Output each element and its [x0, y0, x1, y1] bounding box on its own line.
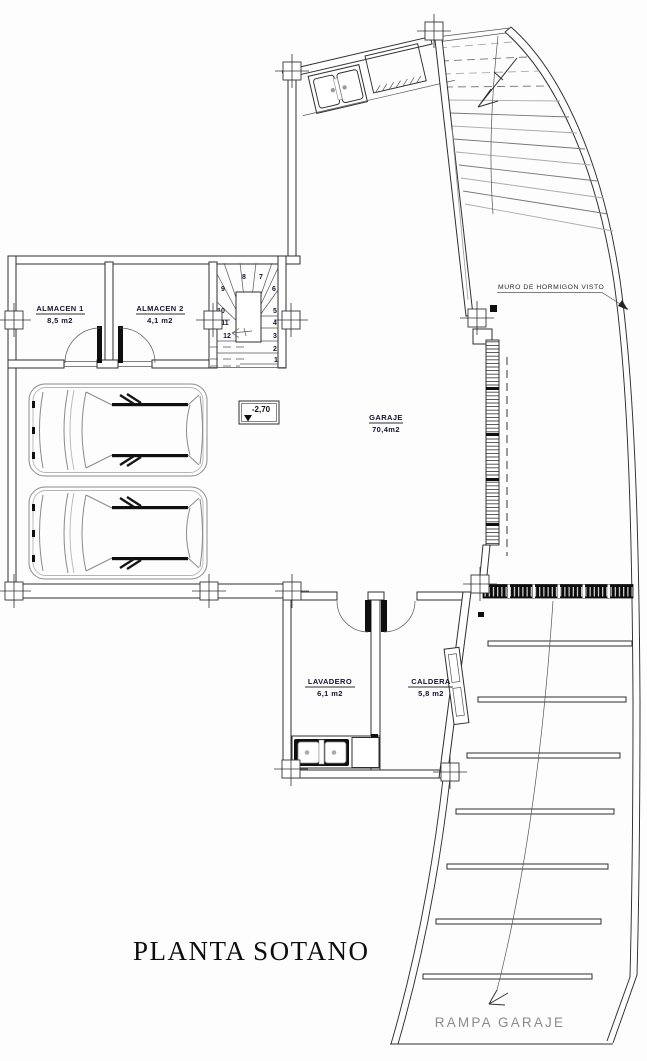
room-name-garaje: GARAJE [369, 413, 403, 422]
room-area-almacen1: 8,5 m2 [47, 316, 73, 325]
stair-step-9: 9 [221, 286, 225, 293]
room-name-lavadero: LAVADERO [308, 677, 352, 686]
level-value: -2,70 [252, 405, 271, 414]
drain-marker [478, 612, 484, 617]
ventilation-grille [486, 340, 499, 545]
room-area-lavadero: 6,1 m2 [317, 689, 343, 698]
wall-note: MURO DE HORMIGON VISTO [497, 284, 628, 310]
upper-utility-area [282, 33, 455, 118]
garage-door-grate [483, 585, 633, 599]
car-1 [29, 384, 207, 476]
stair-step-6: 6 [272, 286, 276, 293]
ramp-direction-arrow-upper [478, 58, 517, 107]
wall-marker [490, 305, 497, 312]
ramp-entry-edge [436, 28, 510, 42]
appliance [352, 738, 379, 768]
floor-plan-drawing: 8 7 9 6 10 5 11 4 12 3 2 1 [0, 0, 647, 1061]
stair-step-1: 1 [274, 357, 278, 364]
stair-step-3: 3 [273, 333, 277, 340]
wall-note-text: MURO DE HORMIGON VISTO [498, 284, 604, 291]
floor-plan-sheet: 8 7 9 6 10 5 11 4 12 3 2 1 [0, 0, 647, 1061]
car-2 [29, 487, 207, 579]
ramp-center-line-upper [491, 36, 498, 214]
room-name-caldera: CALDERA [411, 677, 451, 686]
stair-step-2: 2 [273, 346, 277, 353]
room-area-almacen2: 4,1 m2 [147, 316, 173, 325]
room-name-almacen1: ALMACEN 1 [36, 304, 83, 313]
stair-step-12: 12 [223, 333, 231, 340]
stair-step-4: 4 [273, 320, 277, 327]
ramp-direction-arrow-lower [489, 990, 508, 1005]
room-name-almacen2: ALMACEN 2 [136, 304, 183, 313]
ramp-treads-upper [439, 42, 613, 231]
plan-title: PLANTA SOTANO [133, 936, 369, 966]
level-marker: -2,70 [239, 401, 279, 424]
room-area-garaje: 70,4m2 [372, 425, 400, 434]
garage-ramp [390, 27, 640, 1044]
laundry-counter [292, 734, 380, 768]
room-area-caldera: 5,8 m2 [418, 689, 444, 698]
stair-step-7: 7 [259, 274, 263, 281]
ramp-label: RAMPA GARAJE [435, 1015, 565, 1030]
stair-step-8: 8 [242, 274, 246, 281]
ramp-center-line-lower [497, 601, 553, 990]
stair-step-5: 5 [273, 308, 277, 315]
